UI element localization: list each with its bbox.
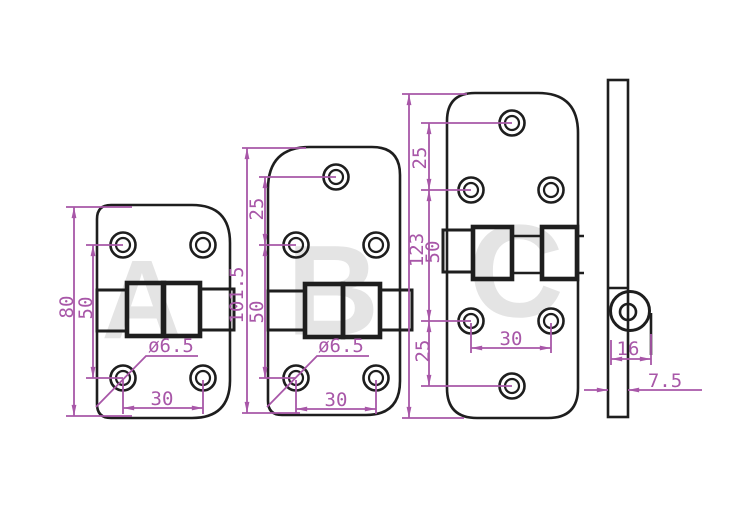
knuckle-segment: [380, 290, 412, 330]
dim-knuckle-width: 16: [617, 338, 640, 360]
dim-hinge-a-spacing-v: 50: [75, 297, 97, 320]
dim-hinge-b-spacing-v: 50: [246, 301, 268, 324]
side-profile-view: [608, 80, 651, 417]
technical-drawing-canvas: A B C: [0, 0, 750, 524]
dim-leaf-thickness: 7.5: [648, 370, 682, 392]
dim-hinge-a-spacing-h: 30: [151, 388, 174, 410]
dim-hinge-b-spacing-h: 30: [325, 389, 348, 411]
dim-hinge-b-height: 101.5: [226, 266, 248, 323]
dim-hinge-a-hole-diameter: ø6.5: [148, 335, 194, 357]
leader-hole-diameter: [267, 356, 369, 407]
dim-hinge-c-top-offset: 25: [409, 147, 431, 170]
screw-hole: [191, 233, 216, 258]
dim-hinge-b-top-offset: 25: [246, 198, 268, 221]
dim-hinge-b-hole-diameter: ø6.5: [318, 335, 364, 357]
dim-hinge-c-spacing-h: 30: [500, 328, 523, 350]
dim-hinge-c-bottom-offset: 25: [412, 340, 434, 363]
leaf-side-outline: [608, 80, 628, 417]
dim-hinge-c-spacing-v: 50: [422, 241, 444, 264]
side-view-dimensions: 16 7.5: [584, 334, 702, 392]
knuckle-barrel: [611, 292, 650, 331]
hinge-drawing: A B C: [0, 0, 750, 524]
